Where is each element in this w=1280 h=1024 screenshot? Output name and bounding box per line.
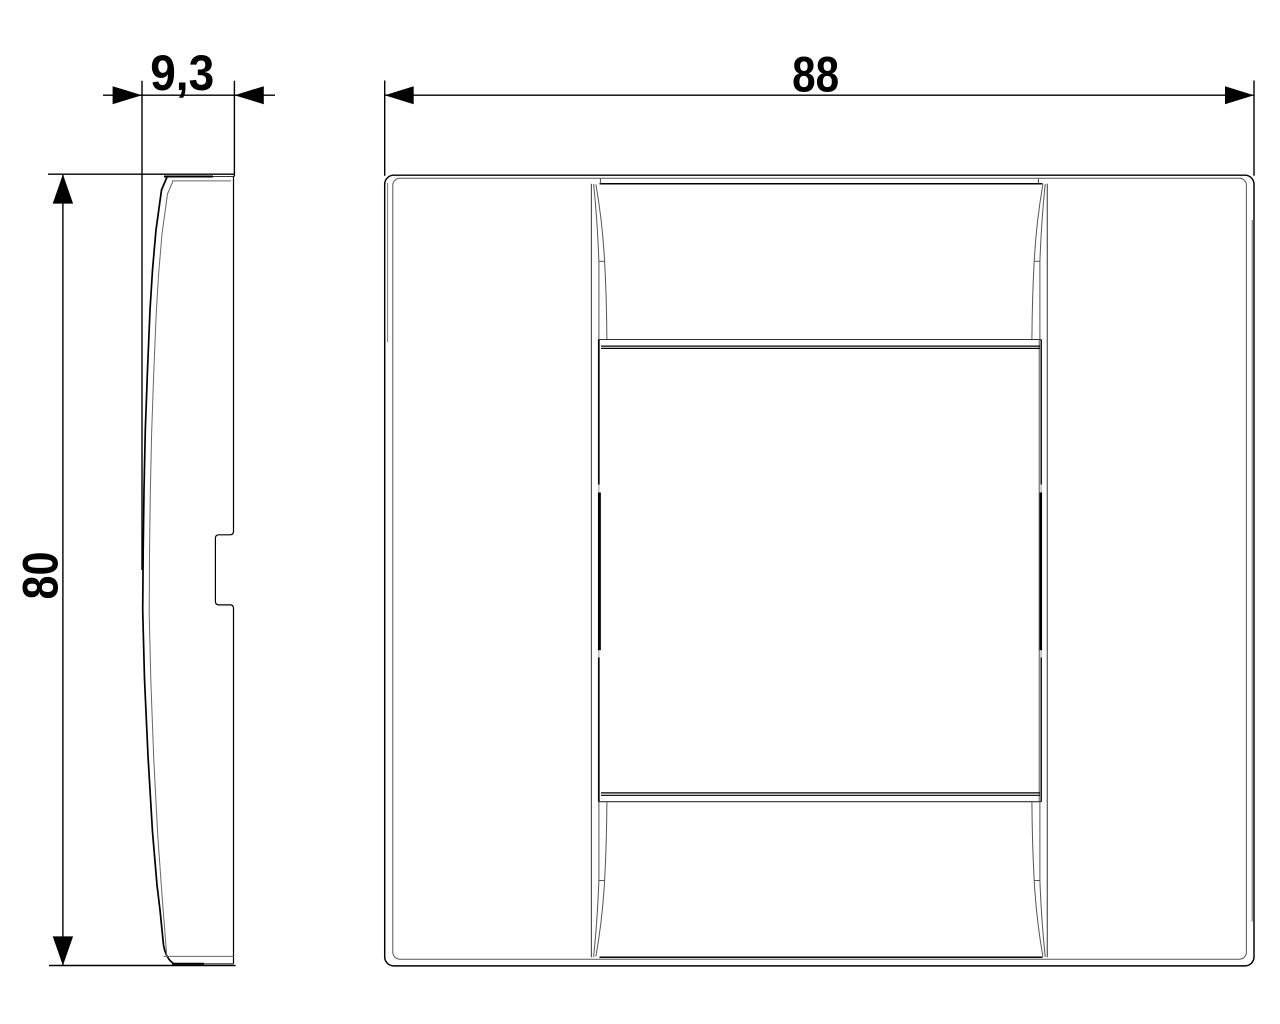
svg-text:80: 80 bbox=[13, 552, 69, 600]
svg-text:9,3: 9,3 bbox=[150, 45, 214, 101]
svg-text:88: 88 bbox=[792, 46, 839, 102]
